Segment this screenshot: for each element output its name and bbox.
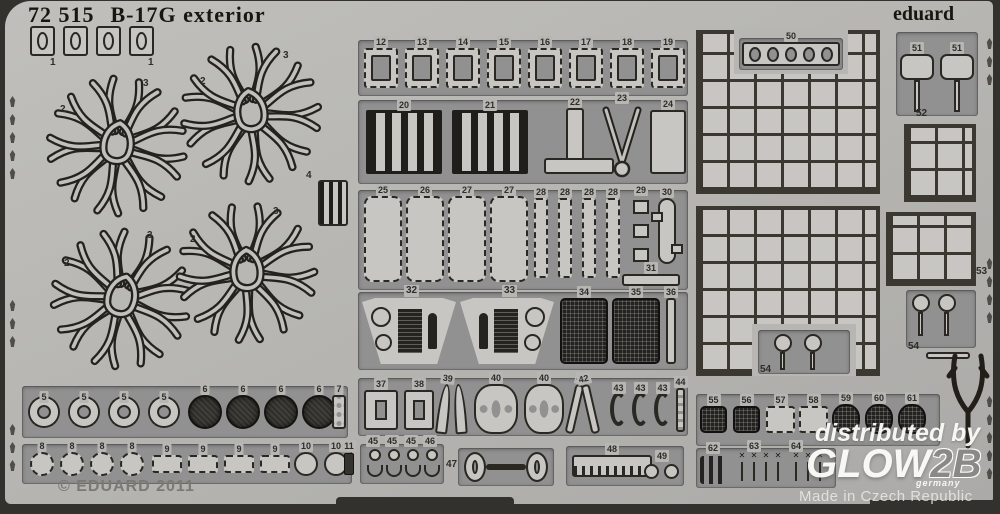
part-number: 28 [534,186,548,198]
part-number: 2 [200,76,206,88]
part-number: 28 [582,186,596,198]
cutout-dumbbell [458,448,554,486]
part-number: 1 [148,57,154,69]
part-number: 51 [910,42,924,54]
instrument-panel-part [460,298,554,364]
loop-end-part [464,452,486,482]
lever-icon [479,313,488,349]
cutout-oval-strip: 50 [739,38,843,70]
clip-loop [70,32,81,50]
part-number: 62 [706,442,720,454]
pin-part [774,454,782,482]
part-number: 5 [79,391,88,403]
block-fitting-part: 38 [404,390,434,430]
frame-part: 18 [610,48,644,88]
loop-end-part [526,452,548,482]
stack-pad [633,200,649,214]
frame-hole [658,55,678,81]
part-number: 27 [460,184,474,196]
frame-part: 19 [651,48,685,88]
mesh-square-part: 56 [733,406,760,433]
part-number: 6 [200,383,209,395]
panel-detail [362,298,456,364]
part-number: 4 [306,170,312,182]
part-number: 37 [374,378,388,390]
part-number: 6 [238,383,247,395]
spar-part: 36 [666,298,676,364]
ring-part: 5 [110,398,138,426]
panel-part: 25 [364,196,402,282]
part-number: 54 [908,341,919,353]
shield-fitting-part: 40 [524,384,564,434]
cylinder-part: 30 [658,198,676,264]
part-number: 38 [412,378,426,390]
frame-part: 14 [446,48,480,88]
anchor-part: 45 [385,449,399,479]
part-number: 64 [789,440,803,452]
cutout-fittings-row: 37 38 39 40 40 41 42 43 43 43 44 [358,378,688,436]
paddle-part: 51 [940,54,974,80]
part-number: 53 [976,266,987,278]
anchor-part: 45 [404,449,418,479]
block-fitting-part: 37 [364,390,398,430]
part-number: 26 [418,184,432,196]
part-number: 28 [606,186,620,198]
disc-part: 6 [302,395,336,429]
wheel-part: 8 [60,452,84,476]
panel-detail [460,298,554,364]
sheet-sku: 72 515 [28,2,95,27]
pin-part: 63 [750,454,758,482]
disc-part: 6 [264,395,298,429]
part-number: 44 [673,376,687,388]
part-number: 35 [629,286,643,298]
part-number: 3 [147,230,153,242]
sheet-title: 72 515B-17G exterior [28,2,266,28]
part-number: 32 [404,285,419,297]
part-number: 20 [397,99,411,111]
part-number: 5 [39,391,48,403]
photoetch-fret-photo: 72 515B-17G exterior eduard 1 1 2 3 2 3 … [0,0,1000,514]
wheel-part: 8 [120,452,144,476]
frame-hole [494,55,514,81]
part-number: 60 [872,392,886,404]
anchor-part: 46 [423,449,437,479]
part-number: 29 [634,184,648,196]
pad-part: 9 [188,455,218,473]
hub-part: 10 [294,452,318,476]
part-number: 6 [276,383,285,395]
door-part: 24 [650,110,686,174]
stacked-bracket-part: 29 [630,198,652,264]
pad-part: 9 [152,455,182,473]
paddle-stem [954,80,960,112]
part-number: 3 [283,50,289,62]
part-number: 45 [366,435,380,447]
pin-part [762,454,770,482]
oval-hole [821,47,833,62]
part-number: 1 [50,57,56,69]
part-number: 45 [385,435,399,447]
part-number: 54 [760,364,771,376]
part-number: 40 [489,372,503,384]
dial-icon [524,334,541,351]
part-number: 9 [162,443,171,455]
part-number: 8 [97,440,106,452]
oval-hole [785,47,797,62]
part-number: 8 [127,440,136,452]
frame-hole [535,55,555,81]
bar-part: 31 [622,274,680,286]
dial-icon [375,334,392,351]
part-number: 43 [633,382,647,394]
frame-part: 15 [487,48,521,88]
waffle-grille-small [904,124,976,202]
stack-pad [633,248,649,262]
part-number: 61 [905,392,919,404]
oval-hole [767,47,779,62]
part-number: 5 [119,391,128,403]
link-part: 49 [644,464,680,480]
part-number: 55 [706,394,720,406]
dumbbell-bar [486,464,526,470]
part-number: 2 [190,234,196,246]
clip-part [30,26,55,56]
part-number: 19 [661,36,675,48]
fitting-hole [375,400,387,420]
part-number: 49 [655,450,669,462]
part-number: 16 [538,36,552,48]
part-number: 8 [67,440,76,452]
lollipop-stem [944,312,949,336]
blade-part [452,384,467,435]
clip-part [129,26,154,56]
oval-strip-part: 50 [742,42,840,66]
part-number: 57 [773,394,787,406]
lollipop-part [774,334,792,352]
oval-hole [749,47,761,62]
strip-part: 28 [534,198,548,278]
part-number: 27 [502,184,516,196]
lever-icon [428,313,437,349]
part-number: 43 [611,382,625,394]
part-number: 14 [456,36,470,48]
wheel-part: 8 [90,452,114,476]
mesh-screen-part: 34 [560,298,608,364]
clip-loop [37,32,48,50]
disc-part: 6 [226,395,260,429]
frame-part: 17 [569,48,603,88]
clip-part [96,26,121,56]
part-number: 47 [446,459,457,471]
watermark-brand: GLOW [806,442,930,486]
disc-part: 6 [188,395,222,429]
dial-icon [371,307,391,327]
part-number: 46 [423,435,437,447]
part-number: 59 [839,392,853,404]
watermark-country: germany [916,478,961,488]
part-number: 33 [502,285,517,297]
part-number: 11 [342,440,356,452]
frame-part: 12 [364,48,398,88]
made-in-text: Made in Czech Republic [799,489,973,505]
part-number: 15 [497,36,511,48]
lollipop-part [912,294,930,312]
part-number: 2 [64,258,70,270]
part-number: 5 [159,391,168,403]
mesh-square-part: 55 [700,406,727,433]
cutout-rings-row: 5 5 5 5 6 6 6 6 7 [22,386,348,438]
clip-part [63,26,88,56]
grid-block [398,309,422,353]
part-number: 8 [37,440,46,452]
link-ring [664,464,679,479]
chain-strip-part: 44 [676,388,685,432]
cutout-instrument-row: 32 33 34 35 36 [358,292,688,370]
instrument-panel-part [362,298,456,364]
panel-part: 26 [406,196,444,282]
pad-part: 9 [260,455,290,473]
part-number: 56 [739,394,753,406]
pad-part: 9 [224,455,254,473]
lollipop-part [804,334,822,352]
sheet-name: B-17G exterior [111,2,266,27]
drilled-plate-part: 7 [332,395,346,429]
ignition-harness-part [166,192,327,353]
part-number: 9 [234,443,243,455]
dial-icon [525,307,545,327]
part-number: 63 [747,440,761,452]
part-number: 22 [568,96,582,108]
ladder-grille-part: 20 [366,110,442,174]
ladder-grille-part: 21 [452,110,528,174]
c-clamp-part: 43 [610,392,627,426]
cutout-ladders-row: 20 21 22 23 24 [358,100,688,184]
part-number: 43 [655,382,669,394]
part-number: 12 [374,36,388,48]
part-number: 23 [615,92,629,104]
pin-part [738,454,746,482]
bar-group-part: 62 [700,456,726,484]
blade-part: 39 [435,383,453,434]
strip-part: 28 [558,198,572,278]
part-number: 6 [314,383,323,395]
cutout-frames-row: 12 13 14 15 16 17 18 19 [358,40,688,96]
wishbone-part: 23 [600,106,644,182]
paddle-part: 51 [900,54,934,80]
part-number: 9 [270,443,279,455]
waffle-grille-small [886,212,976,286]
stack-pad [633,224,649,238]
clip-loop [136,32,147,50]
plate-part: 57 [766,406,795,433]
cutout-lollipops [906,290,976,348]
mesh-screen-part: 35 [612,298,660,364]
part-number: 36 [664,286,678,298]
strip-part: 28 [606,198,620,278]
ring-part: 5 [30,398,58,426]
frame-hole [453,55,473,81]
panel-part: 27 [448,196,486,282]
part-number: 42 [575,371,591,386]
part-number: 39 [440,371,455,385]
frame-hole [371,55,391,81]
shield-fitting-part: 40 [474,384,518,434]
clip-loop [103,32,114,50]
grid-block [494,309,518,353]
hook-part: 11 [344,453,354,475]
frame-part: 13 [405,48,439,88]
pin-part: 64 [792,454,800,482]
cutout-comb: 48 49 [566,446,684,486]
frame-hole [576,55,596,81]
c-clamp-part: 43 [654,392,671,426]
part-number: 3 [143,78,149,90]
part-number: 45 [404,435,418,447]
frame-hole [617,55,637,81]
part-number: 2 [60,104,66,116]
link-ring [644,464,659,479]
panel-part: 27 [490,196,528,282]
c-clamp-part: 43 [632,392,649,426]
part-number: 10 [329,440,343,452]
cutout-anchors: 45 45 45 46 [360,444,444,484]
lollipop-stem [810,352,815,370]
part-number: 34 [577,286,591,298]
cutout-panels-row: 25 26 27 27 28 28 28 28 29 30 31 [358,190,688,290]
part-number: 18 [620,36,634,48]
part-number: 52 [916,108,927,120]
ring-part: 5 [150,398,178,426]
wheel-part: 8 [30,452,54,476]
oval-hole [803,47,815,62]
part-number: 28 [558,186,572,198]
part-number: 31 [644,262,658,274]
fitting-hole [413,400,425,420]
part-number: 24 [661,98,675,110]
anchor-part: 45 [366,449,380,479]
part-number: 30 [660,186,674,198]
part-number: 25 [376,184,390,196]
part-number: 58 [806,394,820,406]
part-number: 51 [950,42,964,54]
strip-part: 28 [582,198,596,278]
copyright-text: © EDUARD 2011 [58,478,195,496]
part-number: 48 [605,443,619,455]
part-number: 17 [579,36,593,48]
brand-logo: eduard [893,2,954,26]
part-number: 10 [299,440,313,452]
frame-hole [412,55,432,81]
part-number: 50 [784,30,798,42]
lollipop-stem [918,312,923,336]
part-number: 9 [198,443,207,455]
ring-part: 5 [70,398,98,426]
part-number: 40 [537,372,551,384]
part-number: 7 [334,383,343,395]
frame-part: 16 [528,48,562,88]
leg-part: 42 [580,384,600,435]
lollipop-part [938,294,956,312]
bottom-edge [0,506,1000,514]
part-number: 21 [483,99,497,111]
cutout-paddles: 51 51 [896,32,978,116]
cutout-lollipops [758,330,850,374]
part-number: 3 [273,206,279,218]
part-number: 13 [415,36,429,48]
comb-strip-part: 48 [572,455,652,477]
lollipop-stem [780,352,785,370]
